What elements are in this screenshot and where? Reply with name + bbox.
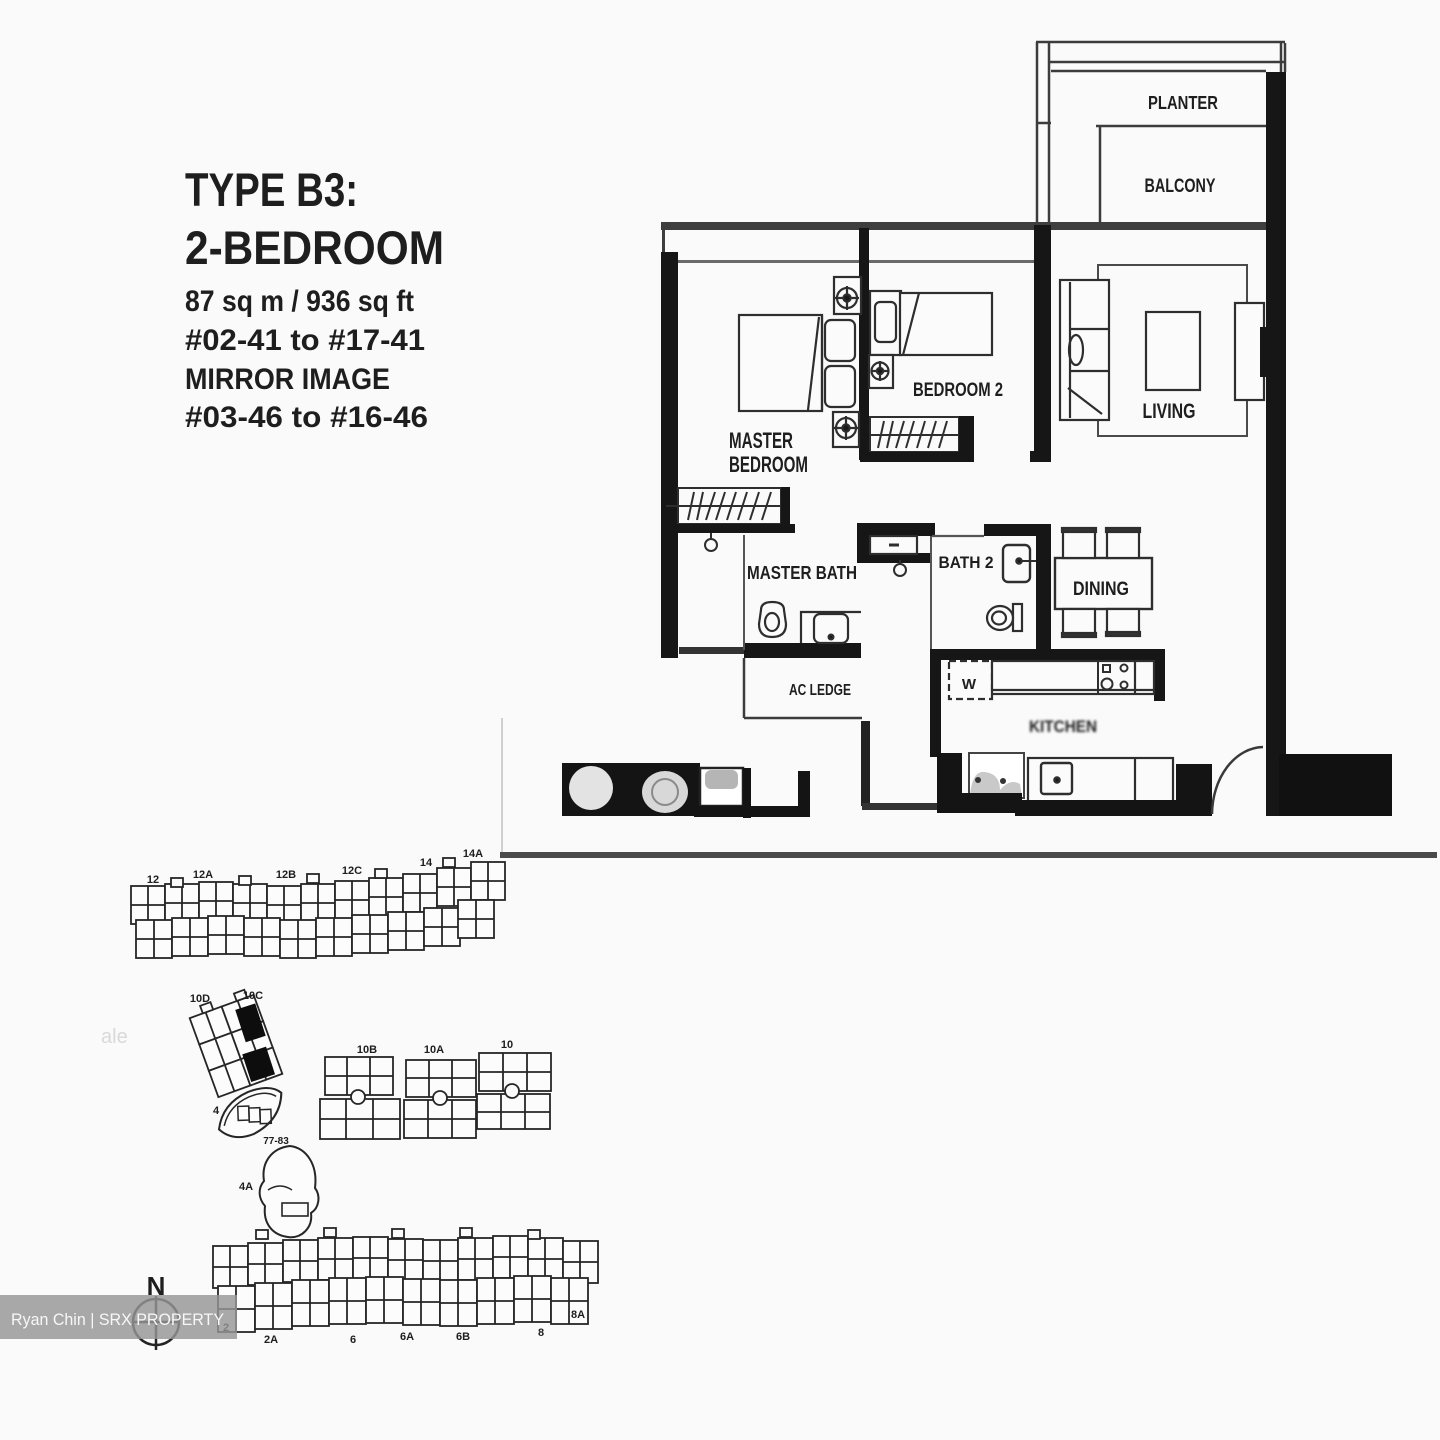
svg-text:4A: 4A <box>239 1181 253 1193</box>
svg-text:DINING: DINING <box>1073 579 1129 600</box>
svg-text:10D: 10D <box>190 993 210 1005</box>
svg-text:Ryan Chin | SRX PROPERTY: Ryan Chin | SRX PROPERTY <box>11 1310 224 1329</box>
svg-text:77-83: 77-83 <box>263 1136 289 1147</box>
svg-text:12A: 12A <box>193 869 213 881</box>
svg-text:12B: 12B <box>276 869 296 881</box>
svg-text:14: 14 <box>420 857 433 869</box>
svg-text:87 sq m / 936 sq ft: 87 sq m / 936 sq ft <box>185 285 414 318</box>
svg-text:2-BEDROOM: 2-BEDROOM <box>185 221 444 274</box>
svg-text:ale: ale <box>101 1026 128 1048</box>
svg-text:6B: 6B <box>456 1331 470 1343</box>
svg-text:14A: 14A <box>463 848 483 860</box>
svg-text:LIVING: LIVING <box>1143 400 1196 423</box>
svg-text:12C: 12C <box>342 865 362 877</box>
svg-text:MIRROR IMAGE: MIRROR IMAGE <box>185 363 390 396</box>
svg-text:TYPE B3:: TYPE B3: <box>185 163 358 216</box>
svg-text:BATH 2: BATH 2 <box>939 553 994 572</box>
svg-text:MASTER BATH: MASTER BATH <box>747 563 857 583</box>
svg-text:AC LEDGE: AC LEDGE <box>789 682 851 699</box>
svg-text:10: 10 <box>501 1039 513 1051</box>
svg-text:BALCONY: BALCONY <box>1145 176 1216 197</box>
svg-text:4: 4 <box>213 1105 220 1117</box>
svg-text:MASTER: MASTER <box>729 428 793 453</box>
svg-text:W: W <box>962 676 977 693</box>
svg-text:KITCHEN: KITCHEN <box>1029 717 1097 736</box>
svg-text:10A: 10A <box>424 1044 444 1056</box>
svg-text:6: 6 <box>350 1334 356 1346</box>
svg-text:8A: 8A <box>571 1309 585 1321</box>
svg-text:PLANTER: PLANTER <box>1148 93 1218 113</box>
svg-text:2A: 2A <box>264 1334 278 1346</box>
svg-text:#03-46 to #16-46: #03-46 to #16-46 <box>185 401 428 434</box>
svg-text:8: 8 <box>538 1327 544 1339</box>
svg-text:12: 12 <box>147 874 159 886</box>
svg-text:BEDROOM: BEDROOM <box>729 452 808 477</box>
svg-text:10C: 10C <box>243 990 263 1002</box>
svg-text:10B: 10B <box>357 1044 377 1056</box>
svg-text:BEDROOM 2: BEDROOM 2 <box>913 380 1003 401</box>
svg-text:#02-41 to #17-41: #02-41 to #17-41 <box>185 324 425 357</box>
svg-text:6A: 6A <box>400 1331 414 1343</box>
